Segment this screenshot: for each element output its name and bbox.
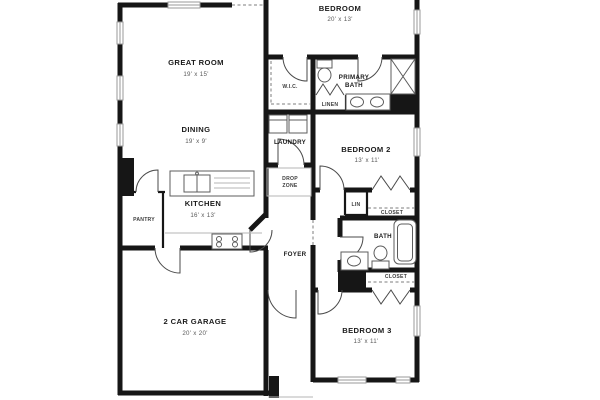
room-label-pantry: PANTRY — [133, 217, 155, 223]
room-label-bedroom: BEDROOM — [319, 4, 361, 13]
hall-vanity-sink — [341, 252, 368, 270]
bedroom3-closet-bifold — [372, 290, 410, 304]
room-label-bedroom2: BEDROOM 2 — [341, 145, 391, 154]
room-dims-kitchen: 16' x 13' — [190, 212, 215, 219]
room-label-great-room: GREAT ROOM — [168, 58, 224, 67]
hall-toilet-icon — [372, 246, 389, 269]
kitchen-island-with-sink — [170, 171, 254, 196]
floorplan-canvas: BEDROOM 20' x 13' GREAT ROOM 19' x 15' D… — [0, 0, 600, 400]
primary-bath-wall-block — [390, 94, 419, 111]
room-dims-great-room: 19' x 15' — [183, 71, 208, 78]
bathtub-icon — [394, 220, 416, 264]
bedroom3-door-swing — [318, 290, 342, 314]
room-label-primary-bath-line1: PRIMARY — [339, 74, 370, 81]
room-label-closet-bedroom2: CLOSET — [381, 210, 404, 216]
plumbing-wall-block — [338, 268, 366, 292]
garage-entry-door-swing — [155, 248, 180, 273]
bedroom2-closet-bifold — [372, 176, 410, 190]
washer-dryer-icons — [269, 115, 307, 133]
room-label-bedroom3: BEDROOM 3 — [342, 326, 392, 335]
room-label-laundry: LAUNDRY — [274, 139, 307, 146]
room-label-kitchen: KITCHEN — [185, 199, 222, 208]
room-label-wic: W.I.C. — [282, 84, 298, 90]
room-label-garage: 2 CAR GARAGE — [163, 317, 226, 326]
room-dims-bedroom3: 13' x 11' — [354, 338, 379, 345]
room-label-bath: BATH — [374, 233, 392, 240]
primary-toilet-icon — [317, 60, 332, 82]
bedroom2-door-swing — [320, 166, 344, 190]
porch-column — [269, 376, 279, 398]
room-dims-garage: 20' x 20' — [182, 330, 207, 337]
front-door-swing — [268, 290, 296, 318]
range-icon — [212, 234, 242, 249]
room-label-primary-bath-line2: BATH — [345, 82, 363, 89]
room-label-drop-zone-line1: DROP — [282, 176, 298, 182]
room-label-lin: LIN — [352, 202, 361, 208]
wic-door-swing — [283, 57, 307, 81]
room-label-closet-bedroom3: CLOSET — [385, 274, 408, 280]
room-dims-bedroom: 20' x 13' — [327, 16, 352, 23]
drop-zone-bench — [267, 168, 311, 196]
dashed-layer — [232, 5, 415, 282]
room-label-dining: DINING — [182, 125, 211, 134]
linen-bifold-doors — [316, 84, 344, 95]
pantry-door-swing — [136, 170, 158, 192]
primary-vanity-double-sink — [346, 94, 390, 110]
room-label-linen: LINEN — [322, 102, 339, 108]
room-label-foyer: FOYER — [284, 251, 307, 258]
shower-icon — [391, 59, 415, 94]
kitchen-wall-pier — [120, 158, 134, 196]
room-dims-bedroom2: 13' x 11' — [355, 157, 380, 164]
room-label-drop-zone-line2: ZONE — [282, 183, 298, 189]
wic-shelving-dashes — [271, 61, 311, 104]
room-dims-dining: 19' x 9' — [185, 138, 207, 145]
floorplan-drawing: BEDROOM 20' x 13' GREAT ROOM 19' x 15' D… — [0, 0, 600, 400]
